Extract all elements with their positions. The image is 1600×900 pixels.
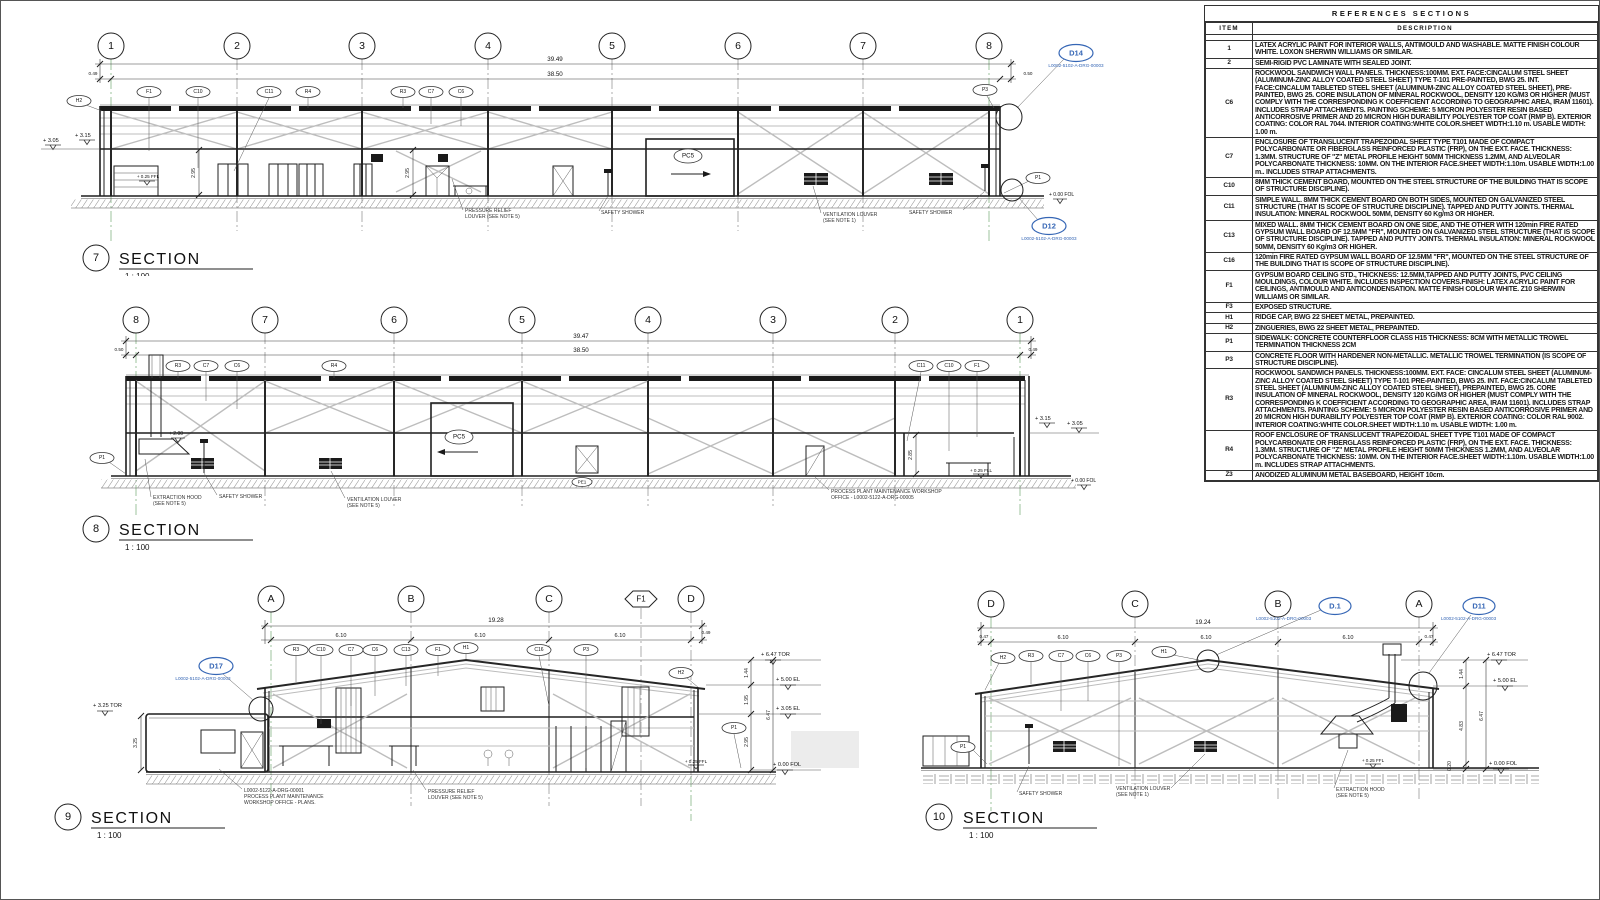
tag-c6: C6 <box>234 363 241 369</box>
table-row: F3EXPOSED STRUCTURE. <box>1206 303 1598 313</box>
ffl-marker-label: + 0.25 FFL <box>137 174 160 179</box>
svg-text:(SEE NOTE 1): (SEE NOTE 1) <box>823 218 856 224</box>
elev-305: + 3.05 <box>43 138 59 144</box>
elev-200: + 2.00 <box>169 431 183 437</box>
tag-c6: C6 <box>1085 653 1092 659</box>
safety-shower-label: SAFETY SHOWER <box>601 210 645 216</box>
section-scale: 1 : 100 <box>125 272 150 276</box>
grid-bubbles: A B C F1 D <box>258 586 704 612</box>
grid-bubble-label: D <box>687 593 695 605</box>
section-8-drawing: 39.47 38.50 0.50 0.49 8 7 6 5 4 3 2 1 <box>41 291 1161 551</box>
safety-shower-label: SAFETY SHOWER <box>909 210 953 216</box>
safety-shower-label: SAFETY SHOWER <box>1019 791 1063 797</box>
x-bracing <box>136 381 895 474</box>
grid-bubble-label: A <box>1415 598 1422 610</box>
dim-bay: 6.10 <box>336 633 347 639</box>
dim-483: 4.83 <box>1459 721 1465 731</box>
elev-315: + 3.15 <box>75 133 91 139</box>
tag-r4: R4 <box>331 363 338 369</box>
svg-text:LOUVER (SEE NOTE 5): LOUVER (SEE NOTE 5) <box>428 795 483 801</box>
elev-tor-325: + 3.25 TOR <box>93 703 122 709</box>
table-row: C108MM THICK CEMENT BOARD, MOUNTED ON TH… <box>1206 177 1598 195</box>
dim-left: 0.50 <box>115 347 124 352</box>
chair <box>466 188 472 194</box>
table-row: C7ENCLOSURE OF TRANSLUCENT TRAPEZOIDAL S… <box>1206 138 1598 178</box>
grid-bubble-label: C <box>1131 598 1139 610</box>
section-title: 9 SECTION 1 : 100 <box>55 804 225 840</box>
tag-c11: C11 <box>917 363 926 369</box>
tag-h1: H1 <box>463 645 470 651</box>
table-row: C16120min FIRE RATED GYPSUM WALL BOARD O… <box>1206 252 1598 270</box>
tag-h2: H2 <box>76 98 83 104</box>
columns <box>111 111 989 196</box>
callout-d14-label[interactable]: D14 <box>1069 49 1084 58</box>
dim-right: 0.47 <box>1425 634 1434 639</box>
drawing-sheet: 39.49 38.50 0.49 0.50 1 2 3 4 5 6 7 8 <box>0 0 1600 900</box>
dim-144: 1.44 <box>1459 669 1465 679</box>
table-row: P1SIDEWALK: CONCRETE COUNTERFLOOR CLASS … <box>1206 334 1598 352</box>
tag-p1: P1 <box>960 744 966 750</box>
tag-c10: C10 <box>316 647 325 653</box>
extraction-hood <box>1321 644 1407 748</box>
room-height-dim: 2.95 <box>191 168 197 178</box>
tag-p3: P3 <box>1116 653 1122 659</box>
dim-647: 6.47 <box>1479 711 1485 721</box>
svg-text:(SEE NOTE 1): (SEE NOTE 1) <box>1116 792 1149 798</box>
section-7-drawing: 39.49 38.50 0.49 0.50 1 2 3 4 5 6 7 8 <box>41 26 1161 276</box>
wall-equipment <box>438 154 448 162</box>
annex-office <box>146 714 268 772</box>
tag-r3: R3 <box>293 647 300 653</box>
grid-bubble-label: 2 <box>892 314 898 326</box>
tag-f1: F1 <box>146 89 152 95</box>
grid-bubble-label: 3 <box>359 40 365 52</box>
window-frames <box>218 164 372 196</box>
callout-d17-label[interactable]: D17 <box>209 662 223 671</box>
roof-band <box>126 376 1025 381</box>
callout-d1-ref[interactable]: L0002-5102-A-DRG-00003 <box>1256 616 1312 621</box>
columns <box>136 381 1020 476</box>
dimension-lines: 19.24 0.47 6.10 6.10 6.10 0.47 <box>977 619 1438 646</box>
section-title-text: SECTION <box>91 810 173 827</box>
tag-c16: C16 <box>534 647 543 653</box>
elev-tor-647: + 6.47 TOR <box>1487 652 1516 658</box>
tag-c6: C6 <box>372 647 379 653</box>
table-row: C13MIXED WALL. 8MM THICK CEMENT BOARD ON… <box>1206 220 1598 252</box>
col-header-description: DESCRIPTION <box>1253 23 1598 35</box>
dim-total: 19.28 <box>488 617 504 624</box>
table-row: 1LATEX ACRYLIC PAINT FOR INTERIOR WALLS,… <box>1206 41 1598 59</box>
dim-bay: 6.10 <box>1058 635 1069 641</box>
ground-hatch <box>146 776 776 785</box>
elev-fol: + 0.00 FOL <box>773 762 801 768</box>
partition-upper <box>481 687 504 711</box>
dim-total: 39.49 <box>547 56 563 63</box>
grid-bubble-label: 4 <box>485 40 491 52</box>
tag-p1: P1 <box>731 725 737 731</box>
chair <box>505 750 513 758</box>
tag-c10: C10 <box>944 363 953 369</box>
tag-h2: H2 <box>1000 655 1007 661</box>
dim-left: 0.47 <box>980 634 989 639</box>
elev-500: + 5.00 EL <box>1493 678 1517 684</box>
dim-inner: 38.50 <box>573 347 589 354</box>
door-frames <box>556 726 601 772</box>
grid-bubble-label: C <box>545 593 553 605</box>
building-elevation <box>71 105 1044 208</box>
grid-bubble-label: 5 <box>519 314 525 326</box>
grid-bubbles: D C B A <box>978 591 1432 617</box>
section-10-drawing: 19.24 0.47 6.10 6.10 6.10 0.47 D C B A <box>921 576 1541 841</box>
grid-bubble-label: 7 <box>860 40 866 52</box>
references-table: REFERENCES SECTIONS ITEM DESCRIPTION 1LA… <box>1204 5 1599 482</box>
section-number: 10 <box>933 811 945 823</box>
table-row: R3ROCKWOOL SANDWICH PANELS. THICKNESS:10… <box>1206 369 1598 431</box>
elevation-markers: + 6.47 TOR + 5.00 EL + 0.00 FOL 1.44 4.8… <box>1401 652 1528 774</box>
dim-right: 0.49 <box>702 630 711 635</box>
elev-500: + 5.00 EL <box>776 677 800 683</box>
table-row: 2SEMI-RIGID PVC LAMINATE WITH SEALED JOI… <box>1206 58 1598 68</box>
section-scale: 1 : 100 <box>125 543 150 551</box>
wall-equipment <box>371 154 383 162</box>
callout-d14-ref[interactable]: L0002-5102-A-DRG-00003 <box>1048 63 1104 68</box>
elev-fol: + 0.00 FOL <box>1071 478 1096 484</box>
grid-bubble-label: 5 <box>609 40 615 52</box>
fan-unit <box>1391 704 1407 722</box>
grid-bubble-label: 6 <box>391 314 397 326</box>
grid-bubble-label: 7 <box>262 314 268 326</box>
tag-c7: C7 <box>1058 653 1065 659</box>
grid-bubble-label: B <box>407 593 414 605</box>
svg-text:6.10: 6.10 <box>1343 635 1354 641</box>
detail-circle <box>1001 179 1023 201</box>
section-title-text: SECTION <box>119 522 201 539</box>
section-number: 8 <box>93 523 99 535</box>
tag-r4: R4 <box>305 89 312 95</box>
room-height-dim: 2.95 <box>405 168 411 178</box>
dimension-lines: 39.47 38.50 0.50 0.49 <box>115 333 1038 359</box>
grid-bubble-label: A <box>267 593 274 605</box>
columns <box>411 668 549 772</box>
vent-stack <box>149 355 163 378</box>
dim-total: 39.47 <box>573 333 589 340</box>
table-row: H1RIDGE CAP, BWG 22 SHEET METAL, PREPAIN… <box>1206 313 1598 323</box>
safety-shower-label: SAFETY SHOWER <box>219 494 263 500</box>
svg-text:6.10: 6.10 <box>475 633 486 639</box>
bench <box>389 746 419 766</box>
dim-left: 0.49 <box>89 71 98 76</box>
grid-bubble-label: F1 <box>636 595 646 604</box>
grid-bubble-label: 4 <box>645 314 651 326</box>
table-row: H2ZINGUERIES, BWG 22 SHEET METAL, PREPAI… <box>1206 323 1598 333</box>
dim-647: 6.47 <box>766 710 772 720</box>
ground-band <box>921 772 1539 784</box>
grid-bubble-label: 8 <box>986 40 992 52</box>
dimension-lines: 19.28 6.10 6.10 6.10 0.49 <box>261 617 711 644</box>
section-title-text: SECTION <box>119 251 201 268</box>
grid-bubbles: 8 7 6 5 4 3 2 1 <box>123 307 1033 333</box>
svg-text:6.10: 6.10 <box>615 633 626 639</box>
callout-d11-ref[interactable]: L0002-5102-A-DRG-00003 <box>1441 616 1497 621</box>
wall-equipment <box>317 719 331 728</box>
callout-d12-ref[interactable]: L0002-5102-A-DRG-00003 <box>1021 236 1077 241</box>
table-row: P3CONCRETE FLOOR WITH HARDENER NON-METAL… <box>1206 351 1598 369</box>
tag-h1: H1 <box>1161 649 1168 655</box>
callout-d1-label[interactable]: D.1 <box>1329 602 1341 611</box>
section-number: 9 <box>65 811 71 823</box>
tag-c11: C11 <box>265 89 274 95</box>
material-tags: R3 C10 C7 C6 C13 F1 H1 C16 P3 H2 P1 <box>284 643 746 769</box>
building-section <box>146 660 859 784</box>
grid-bubble-label: 8 <box>133 314 139 326</box>
elev-fol: + 0.00 FOL <box>1489 761 1517 767</box>
tag-p3: P3 <box>583 647 589 653</box>
interior-fitout: + 2.00 PC5 PE1 2.85 + 0.25 FLL <box>139 355 1014 487</box>
svg-text:(SEE NOTE 5): (SEE NOTE 5) <box>1336 793 1369 799</box>
tag-p3: P3 <box>982 87 988 93</box>
section-title: 7 SECTION 1 : 100 <box>83 245 253 276</box>
grid-bubble-label: D <box>987 598 995 610</box>
dim-inner: 38.50 <box>547 71 563 78</box>
direction-arrow <box>437 449 445 455</box>
section-number: 7 <box>93 252 99 264</box>
table-row: Z3ANODIZED ALUMINUM METAL BASEBOARD, HEI… <box>1206 470 1598 480</box>
fume-hood-cabinet <box>336 688 361 753</box>
col-header-item: ITEM <box>1206 23 1253 35</box>
table-row: C6ROCKWOOL SANDWICH WALL PANELS. THICKNE… <box>1206 69 1598 138</box>
svg-text:LOUVER (SEE NOTE 5): LOUVER (SEE NOTE 5) <box>465 214 520 220</box>
dim-right: 0.49 <box>1029 347 1038 352</box>
ground-hatch <box>71 200 1044 209</box>
grid-bubble-label: 1 <box>108 40 114 52</box>
grid-bubble-label: 2 <box>234 40 240 52</box>
table-row: R4ROOF ENCLOSURE OF TRANSLUCENT TRAPEZOI… <box>1206 431 1598 471</box>
roof-band <box>100 106 1000 111</box>
dim-144: 1.44 <box>744 668 750 678</box>
table-title: REFERENCES SECTIONS <box>1205 6 1598 22</box>
callout-d11-label[interactable]: D11 <box>1472 602 1485 611</box>
section-scale: 1 : 100 <box>97 831 122 840</box>
callout-d17-ref[interactable]: L0002-5102-A-DRG-00003 <box>175 676 231 681</box>
office-height-dim: 2.85 <box>908 450 914 460</box>
dim-295: 2.95 <box>744 737 750 747</box>
tag-c10: C10 <box>193 89 202 95</box>
svg-text:(SEE NOTE 5): (SEE NOTE 5) <box>153 501 186 507</box>
dimension-lines: 39.49 38.50 0.49 0.50 <box>89 56 1033 83</box>
chair <box>484 750 492 758</box>
svg-text:6.10: 6.10 <box>1201 635 1212 641</box>
adjacent-slab <box>791 731 859 768</box>
svg-text:OFFICE - L0002-5122-A-DRG-0000: OFFICE - L0002-5122-A-DRG-00005 <box>831 495 914 501</box>
ffl-marker-label: + 0.25 FFL <box>1362 758 1385 763</box>
ventilation-louver <box>191 458 342 469</box>
tag-p1: P1 <box>1035 175 1041 181</box>
table-row: F1GYPSUM BOARD CEILING STD., THICKNESS: … <box>1206 270 1598 302</box>
grid-bubble-label: 1 <box>1017 314 1023 326</box>
tag-r3: R3 <box>400 89 407 95</box>
grid-bubble-label: 3 <box>770 314 776 326</box>
section-scale: 1 : 100 <box>969 831 994 840</box>
grid-bubble-label: B <box>1274 598 1281 610</box>
elev-305: + 3.05 <box>1067 421 1083 427</box>
svg-text:WORKSHOP OFFICE - PLANS.: WORKSHOP OFFICE - PLANS. <box>244 800 316 806</box>
duct <box>151 381 161 437</box>
detail-callouts: D14 L0002-5102-A-DRG-00003 D12 L0002-510… <box>996 45 1104 242</box>
door-tag-pc5: PC5 <box>682 153 695 160</box>
interior-fitout: + 0.25 FFL <box>1025 644 1407 768</box>
columns <box>1135 670 1278 768</box>
dim-right: 0.50 <box>1024 71 1033 76</box>
table-row: C11SIMPLE WALL. 8MM THICK CEMENT BOARD O… <box>1206 195 1598 220</box>
tag-r3: R3 <box>1028 653 1035 659</box>
tag-c6: C6 <box>458 89 465 95</box>
dim-total: 19.24 <box>1195 619 1211 626</box>
section-title-text: SECTION <box>963 810 1045 827</box>
ffl-marker-label: + 0.25 FLL <box>970 468 993 473</box>
office-room: 2.85 + 0.25 FLL <box>904 432 1014 478</box>
tag-pe1: PE1 <box>578 480 587 485</box>
dim-020: 0.20 <box>1447 761 1453 771</box>
door-tag-pc5: PC5 <box>453 434 466 441</box>
building-elevation <box>101 375 1076 488</box>
section-title: 8 SECTION 1 : 100 <box>83 516 253 551</box>
elev-fol: + 0.00 FOL <box>1049 192 1074 198</box>
elev-305: + 3.05 EL <box>776 706 800 712</box>
dim-195: 1.95 <box>744 695 750 705</box>
material-tags: H2 F1 C10 C11 R4 R3 C7 C6 P3 P1 <box>67 85 1050 194</box>
tag-c7: C7 <box>428 89 435 95</box>
tag-f1: F1 <box>435 647 441 653</box>
tag-r3: R3 <box>175 363 182 369</box>
tag-f1: F1 <box>974 363 980 369</box>
grid-bubble-label: 6 <box>735 40 741 52</box>
overhead-door-pc5 <box>646 139 734 196</box>
section-title: 10 SECTION 1 : 100 <box>926 804 1097 840</box>
tag-c13: C13 <box>401 647 410 653</box>
tag-p1: P1 <box>99 455 105 461</box>
tag-h2: H2 <box>678 670 685 676</box>
annex-height-dim: 3.25 <box>133 738 139 748</box>
callout-d12-label[interactable]: D12 <box>1042 222 1056 231</box>
elev-315: + 3.15 <box>1035 416 1051 422</box>
section-9-drawing: 19.28 6.10 6.10 6.10 0.49 A B C F1 D <box>51 576 911 841</box>
tag-c7: C7 <box>203 363 210 369</box>
svg-text:(SEE NOTE 5): (SEE NOTE 5) <box>347 503 380 509</box>
detail-callouts: D.1 L0002-5102-A-DRG-00003 D11 L0002-510… <box>1197 598 1497 701</box>
tag-c7: C7 <box>348 647 355 653</box>
ffl-marker-label: + 0.25 FFL <box>685 759 708 764</box>
direction-arrow <box>703 171 711 177</box>
